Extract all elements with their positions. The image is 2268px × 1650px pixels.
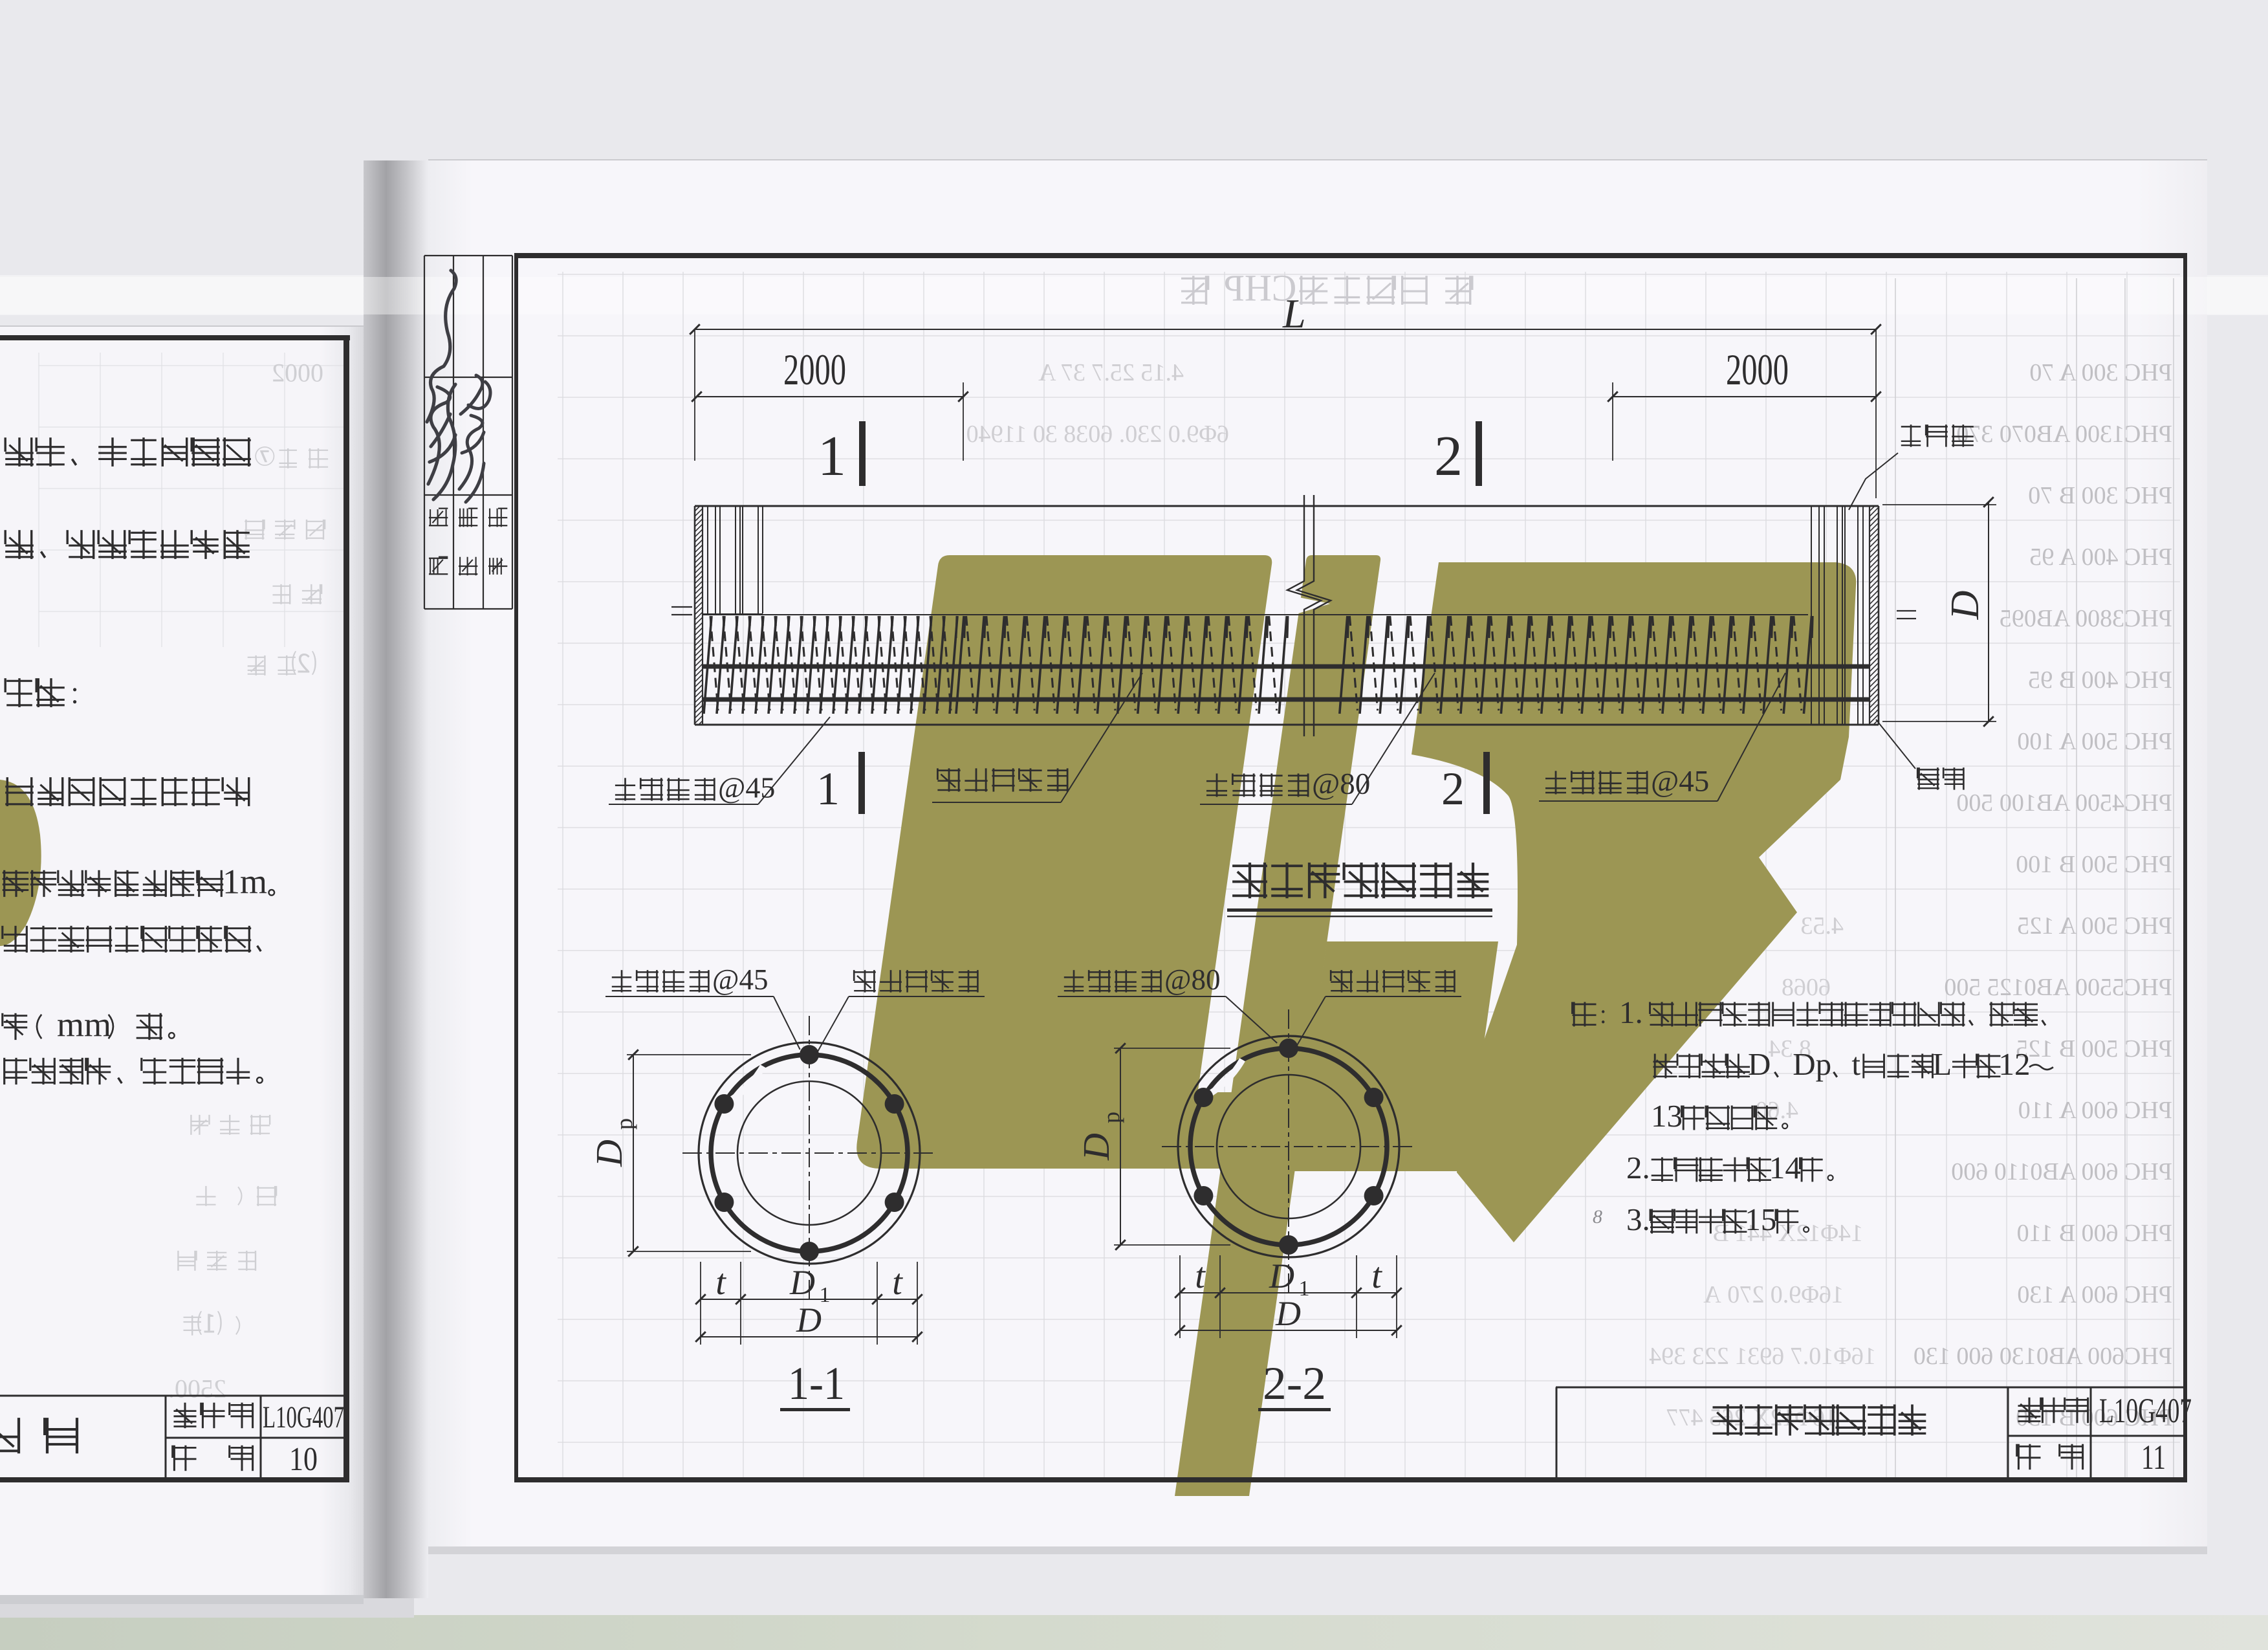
svg-text:D: D (1275, 1294, 1301, 1333)
svg-text:L10G407: L10G407 (2099, 1391, 2192, 1430)
svg-text:L: L (1932, 1046, 1952, 1082)
svg-text:@45: @45 (712, 963, 768, 996)
svg-text:D: D (588, 1139, 630, 1167)
svg-text:PHC 500 B 100: PHC 500 B 100 (2016, 851, 2172, 878)
svg-text:12: 12 (1999, 1046, 2031, 1082)
svg-text:D: D (1269, 1257, 1294, 1295)
svg-text:PHC 400 B 95: PHC 400 B 95 (2028, 666, 2172, 694)
svg-text:@80: @80 (1312, 767, 1370, 800)
svg-text:1.: 1. (1619, 995, 1643, 1030)
svg-text:8: 8 (1593, 1206, 1602, 1227)
svg-text:mm: mm (57, 1005, 111, 1044)
svg-text:⑦: ⑦ (253, 443, 276, 472)
svg-text:0002: 0002 (272, 358, 323, 388)
svg-text:@45: @45 (1651, 764, 1709, 798)
svg-text:2-2: 2-2 (1263, 1358, 1326, 1409)
svg-text:D: D (1748, 1046, 1771, 1082)
svg-text:PHC 500 A 100: PHC 500 A 100 (2017, 728, 2172, 755)
svg-text:t: t (1851, 1046, 1860, 1082)
svg-text:PHC 600 A 130: PHC 600 A 130 (2017, 1281, 2172, 1308)
svg-text:D: D (1943, 591, 1987, 621)
svg-text:@45: @45 (718, 771, 775, 804)
svg-text:16Φ10.7 6931 223 394: 16Φ10.7 6931 223 394 (1649, 1343, 1876, 1370)
svg-text:4.15 25.7 37 A: 4.15 25.7 37 A (1038, 359, 1184, 386)
svg-text:L: L (1282, 291, 1306, 336)
svg-text:t: t (715, 1262, 726, 1303)
svg-text:PHC 500 A 125: PHC 500 A 125 (2017, 912, 2172, 940)
svg-text:PHC 300 A 70: PHC 300 A 70 (2029, 359, 2172, 386)
svg-text:PHC 600 B 110: PHC 600 B 110 (2017, 1220, 2172, 1247)
svg-text:3.: 3. (1626, 1202, 1650, 1237)
svg-text:p: p (1098, 1112, 1124, 1123)
svg-text:⑴: ⑴ (197, 1310, 223, 1339)
svg-text:2: 2 (1434, 425, 1463, 488)
svg-text:1m: 1m (223, 862, 267, 901)
svg-text:t: t (1371, 1256, 1382, 1296)
svg-text:PHC 300 B 70: PHC 300 B 70 (2028, 482, 2172, 509)
svg-text:t: t (892, 1262, 903, 1303)
svg-text:PHC600 AB0130 600 130: PHC600 AB0130 600 130 (1914, 1343, 2172, 1370)
svg-text:6Φ9.0 230. 6038 30 11940: 6Φ9.0 230. 6038 30 11940 (966, 421, 1229, 448)
svg-text:PHC1300 AB070 370: PHC1300 AB070 370 (1956, 421, 2172, 448)
svg-text:11: 11 (2141, 1438, 2166, 1477)
svg-text:2: 2 (1441, 763, 1465, 815)
svg-text:6068: 6068 (1782, 974, 1831, 1001)
svg-text:1-1: 1-1 (788, 1358, 845, 1409)
svg-text:1: 1 (818, 425, 846, 488)
svg-text:2500.: 2500. (168, 1374, 226, 1403)
svg-text:15: 15 (1745, 1202, 1776, 1237)
svg-text:PHC 600 A 110: PHC 600 A 110 (2018, 1097, 2172, 1124)
svg-text:@80: @80 (1164, 963, 1220, 996)
svg-text:10: 10 (289, 1441, 318, 1478)
svg-text:13: 13 (1651, 1098, 1683, 1134)
svg-text:PHC4500 AB100 500: PHC4500 AB100 500 (1956, 789, 2172, 817)
svg-text:PHC5500 AB0125 500: PHC5500 AB0125 500 (1944, 974, 2172, 1001)
svg-text:PHC 500 B 125: PHC 500 B 125 (2016, 1035, 2172, 1062)
svg-text:14: 14 (1769, 1150, 1801, 1185)
svg-text:2000: 2000 (1726, 345, 1789, 394)
svg-text:4.53: 4.53 (1801, 912, 1844, 940)
svg-text:2.: 2. (1626, 1150, 1650, 1185)
svg-text:Dp: Dp (1793, 1046, 1831, 1082)
svg-text:1: 1 (816, 763, 840, 815)
svg-text:t: t (1195, 1256, 1206, 1296)
svg-text:D: D (796, 1301, 822, 1339)
svg-text:4.60: 4.60 (1756, 1097, 1799, 1124)
svg-text:D: D (789, 1263, 815, 1302)
svg-text:16Φ9.0 270 A: 16Φ9.0 270 A (1703, 1281, 1844, 1308)
svg-text:2000: 2000 (783, 345, 846, 394)
svg-text:p: p (611, 1118, 637, 1130)
svg-text:L10G407: L10G407 (263, 1400, 344, 1435)
svg-text:PHC 400 A 95: PHC 400 A 95 (2029, 544, 2172, 571)
svg-text:D: D (1075, 1133, 1117, 1161)
svg-text:PHC3800 AB095: PHC3800 AB095 (2000, 605, 2172, 632)
svg-text:PHC 600 AB0110 600: PHC 600 AB0110 600 (1951, 1158, 2172, 1185)
